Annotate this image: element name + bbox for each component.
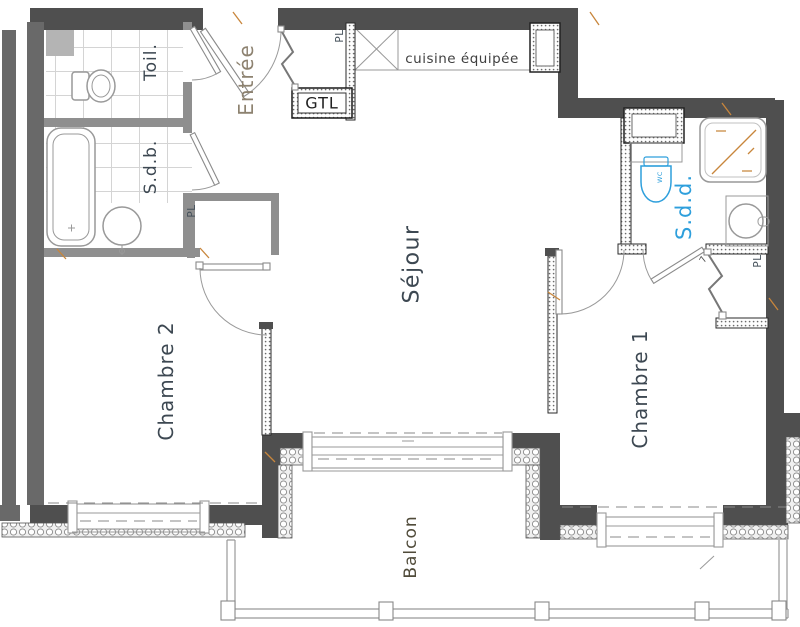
- label-entree: Entrée: [234, 44, 258, 116]
- label-balcon: Balcon: [401, 515, 421, 578]
- window-sejour: [303, 432, 512, 471]
- label-chambre1: Chambre 1: [628, 329, 652, 448]
- floor-plan-drawing: WC: [0, 0, 800, 627]
- closet-chambre2-wall: [187, 193, 279, 201]
- toilet-icon: [72, 70, 115, 102]
- chambre2-door-arc: [200, 268, 267, 335]
- label-sejour: Séjour: [400, 224, 425, 303]
- party-wall-outer: [2, 30, 16, 507]
- folding-door-entrance-pl: [281, 30, 295, 86]
- floor-plan: WC: [0, 0, 800, 627]
- chambre2-door-leaf: [200, 264, 267, 270]
- chambre1-door-arc: [560, 250, 624, 314]
- bathtub-icon: [47, 128, 95, 246]
- label-sdd: S.d.d.: [672, 174, 696, 240]
- doors: [190, 26, 726, 335]
- label-sdb: S.d.b.: [141, 140, 161, 195]
- duct-box-sdd: [624, 108, 684, 143]
- wc-icon: WC: [641, 157, 671, 202]
- label-pl-chambre2: PL: [186, 204, 198, 217]
- label-gtl: GTL: [305, 94, 339, 113]
- label-pl-entrance: PL: [334, 29, 346, 42]
- folding-door-chambre1-pl: [708, 254, 723, 314]
- chambre1-door-leaf: [556, 250, 562, 314]
- sdb-door-leaf: [190, 133, 219, 186]
- balcony-railing: [221, 540, 788, 620]
- duct-box-toilet: [46, 30, 74, 56]
- label-toilette: Toil.: [141, 43, 161, 81]
- label-chambre2: Chambre 2: [154, 321, 178, 440]
- party-wall-inner: [27, 22, 44, 505]
- label-cuisine: cuisine équipée: [405, 51, 519, 67]
- duct-box-kitchen: [530, 23, 560, 72]
- sdd-door-leaf: [651, 247, 705, 283]
- toilet-door-arc: [192, 73, 218, 80]
- label-pl-chambre1: PL: [752, 254, 764, 267]
- wc-label: WC: [656, 171, 664, 183]
- shower-icon: [700, 118, 766, 182]
- sink-icon-sdb: [103, 207, 141, 255]
- sdb-door-arc: [192, 184, 217, 190]
